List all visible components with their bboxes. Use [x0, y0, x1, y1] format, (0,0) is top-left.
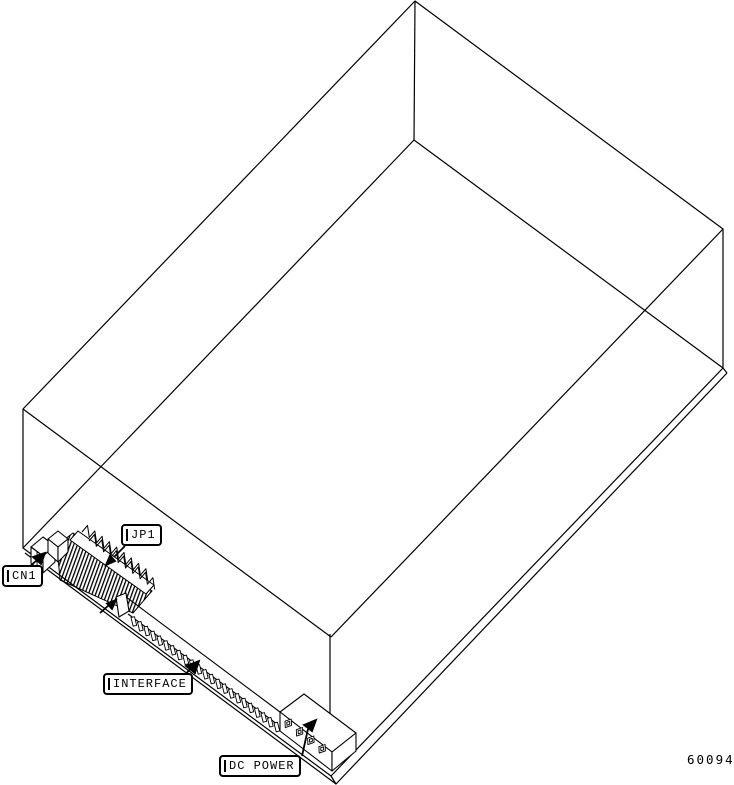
callout-cn1: CN1 — [2, 565, 43, 587]
callout-dc-power: DC POWER — [219, 755, 301, 777]
drive-body-outline — [23, 1, 727, 784]
drive-isometric-line-drawing — [0, 0, 734, 785]
figure-number: 60094 — [687, 752, 734, 767]
callout-interface: INTERFACE — [103, 673, 193, 695]
callout-jp1: JP1 — [121, 524, 162, 546]
figure-page: CN1 JP1 INTERFACE DC POWER 60094 — [0, 0, 734, 785]
